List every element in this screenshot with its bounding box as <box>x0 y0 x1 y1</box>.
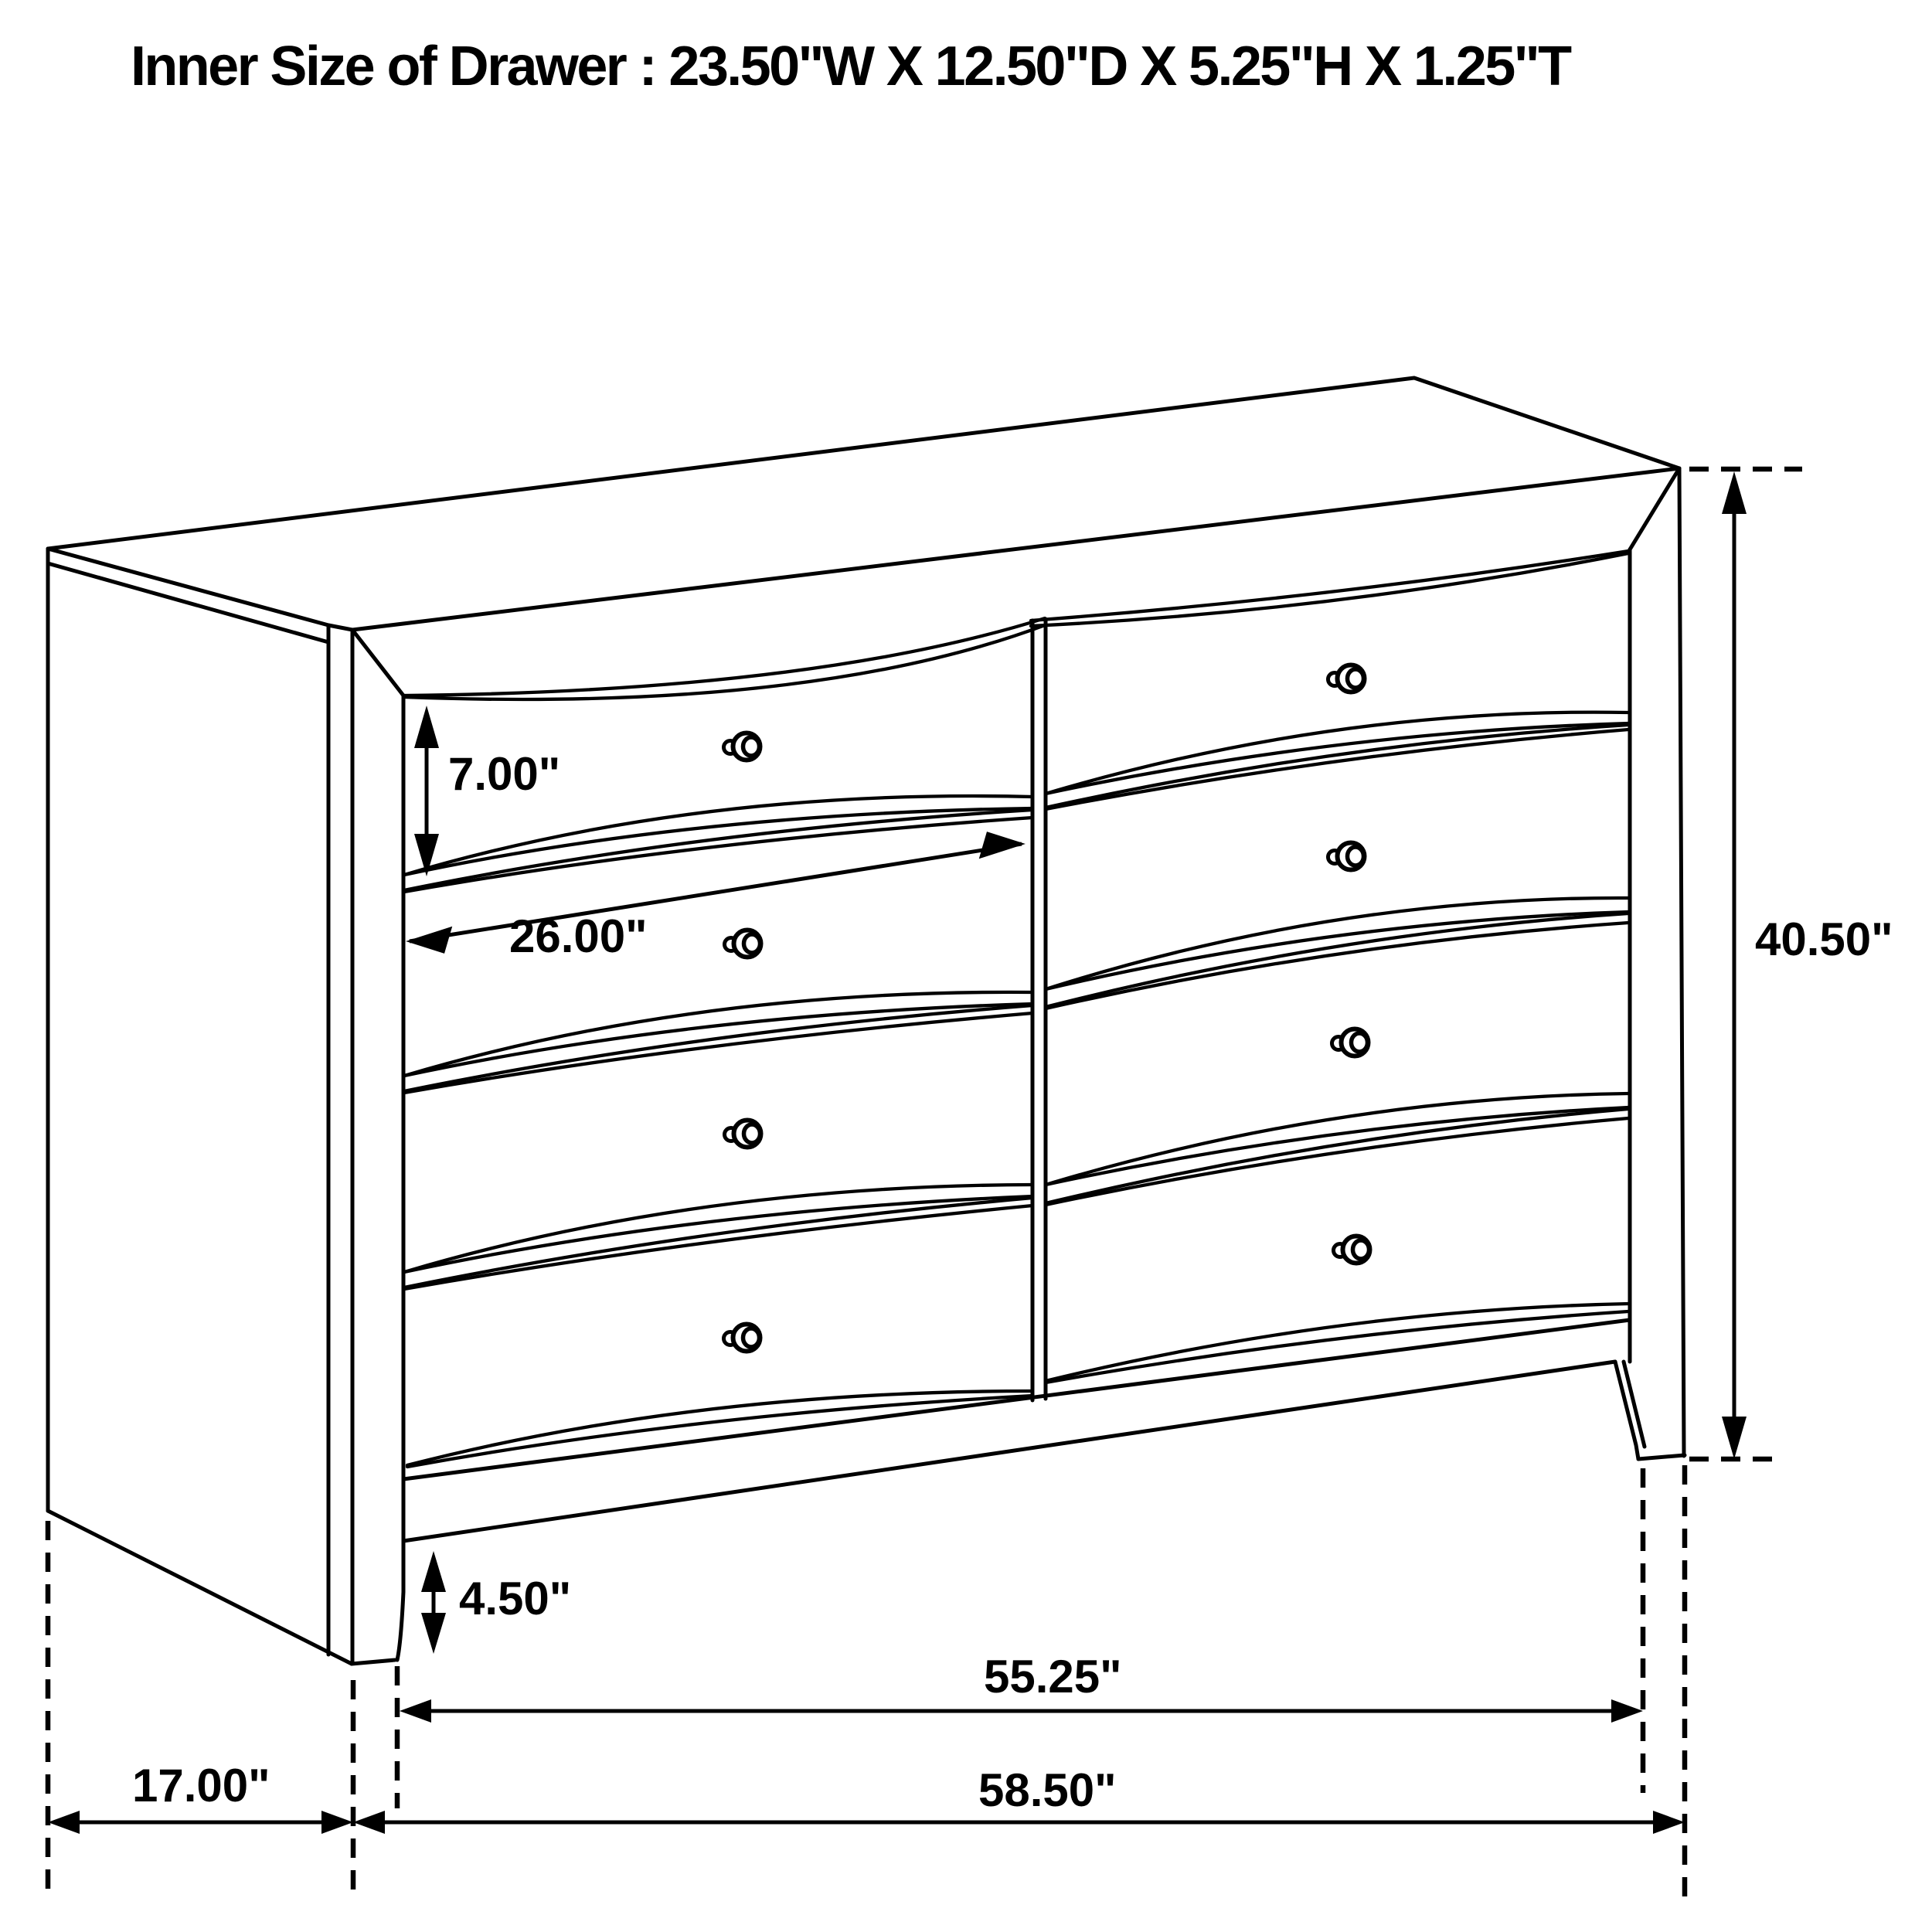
svg-text:40.50": 40.50" <box>1755 913 1893 965</box>
svg-text:55.25": 55.25" <box>984 1651 1122 1702</box>
svg-text:4.50": 4.50" <box>459 1573 571 1624</box>
svg-text:58.50": 58.50" <box>978 1764 1117 1816</box>
svg-text:Inner Size of Drawer : 23.50"W: Inner Size of Drawer : 23.50"W X 12.50"D… <box>131 36 1572 97</box>
svg-text:26.00": 26.00" <box>509 910 648 962</box>
svg-text:17.00": 17.00" <box>132 1760 270 1811</box>
svg-text:7.00": 7.00" <box>448 748 560 800</box>
